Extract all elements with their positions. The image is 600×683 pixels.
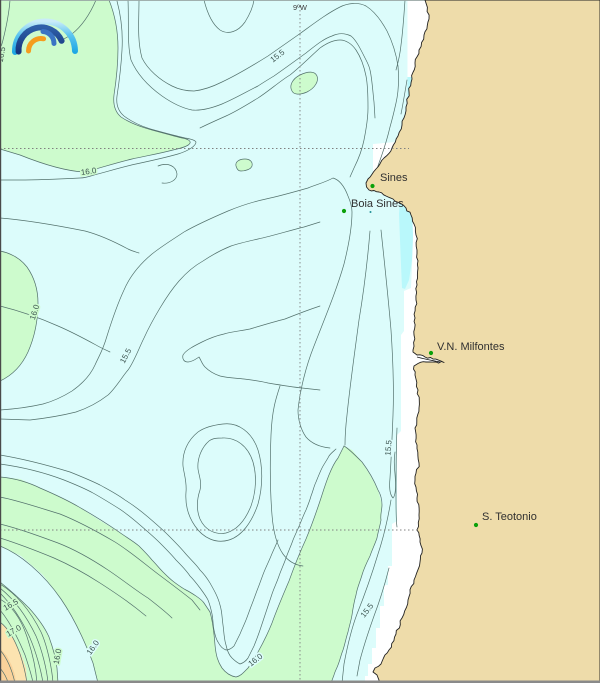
- svg-text:V.N. Milfontes: V.N. Milfontes: [437, 341, 505, 353]
- svg-text:Sines: Sines: [380, 172, 408, 184]
- svg-text:15.5: 15.5: [383, 439, 393, 456]
- svg-text:9ºW: 9ºW: [293, 3, 308, 12]
- svg-text:S. Teotonio: S. Teotonio: [482, 511, 537, 523]
- svg-text:Boia Sines: Boia Sines: [351, 198, 404, 210]
